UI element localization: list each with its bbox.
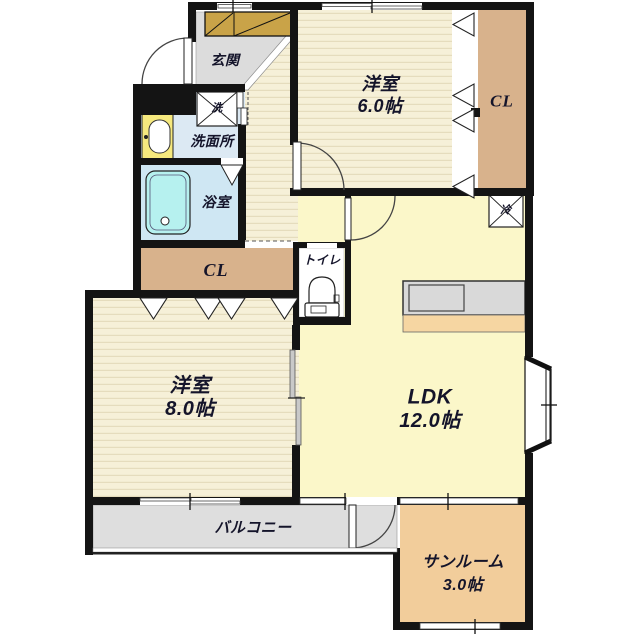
western6-door-leaf [293,142,301,190]
sink-unit [142,114,173,159]
label-toilet: トイレ [303,254,341,266]
label-ldk-size: 12.0帖 [399,411,460,431]
label-sunroom-size: 3.0帖 [443,578,483,594]
toilet-door-gap [307,243,337,248]
label-genkan: 玄関 [211,53,240,67]
balcony-railing [93,548,397,555]
bath-door-gap [221,158,243,165]
label-western6-size: 6.0帖 [357,97,402,115]
label-closet-top: CL [490,93,514,110]
shoe-cabinet [205,12,291,36]
label-western8-size: 8.0帖 [165,399,215,419]
floor-plan-graphic [0,0,640,640]
entrance-door-arc [142,38,188,84]
label-fridge: 冷 [500,206,512,217]
entrance-door-leaf [184,38,192,84]
ldk-door-leaf [345,198,351,240]
label-western6: 洋室 [362,75,399,93]
floor-plan: 玄関 洗 洗面所 浴室 CL トイレ 洋室 6.0帖 CL 冷 洋室 8.0帖 … [0,0,640,640]
label-balcony: バルコニー [214,521,291,536]
bathtub [146,171,190,234]
kitchen-counter [403,281,525,332]
label-closet-mid: CL [203,261,228,279]
balcony-door-gap [346,497,397,505]
balcony-door-leaf [349,505,356,548]
label-washer: 洗 [211,104,223,115]
label-western8: 洋室 [170,376,211,396]
wall-accent-square [212,290,222,298]
label-ldk: LDK [408,387,453,408]
bay-window [525,357,557,453]
label-bathroom: 浴室 [202,195,231,209]
label-sunroom: サンルーム [422,555,504,571]
ldk-nook-floor [298,196,345,242]
toilet-fixture [305,277,339,317]
genkan-top-window [217,0,252,12]
label-washroom: 洗面所 [190,134,234,148]
